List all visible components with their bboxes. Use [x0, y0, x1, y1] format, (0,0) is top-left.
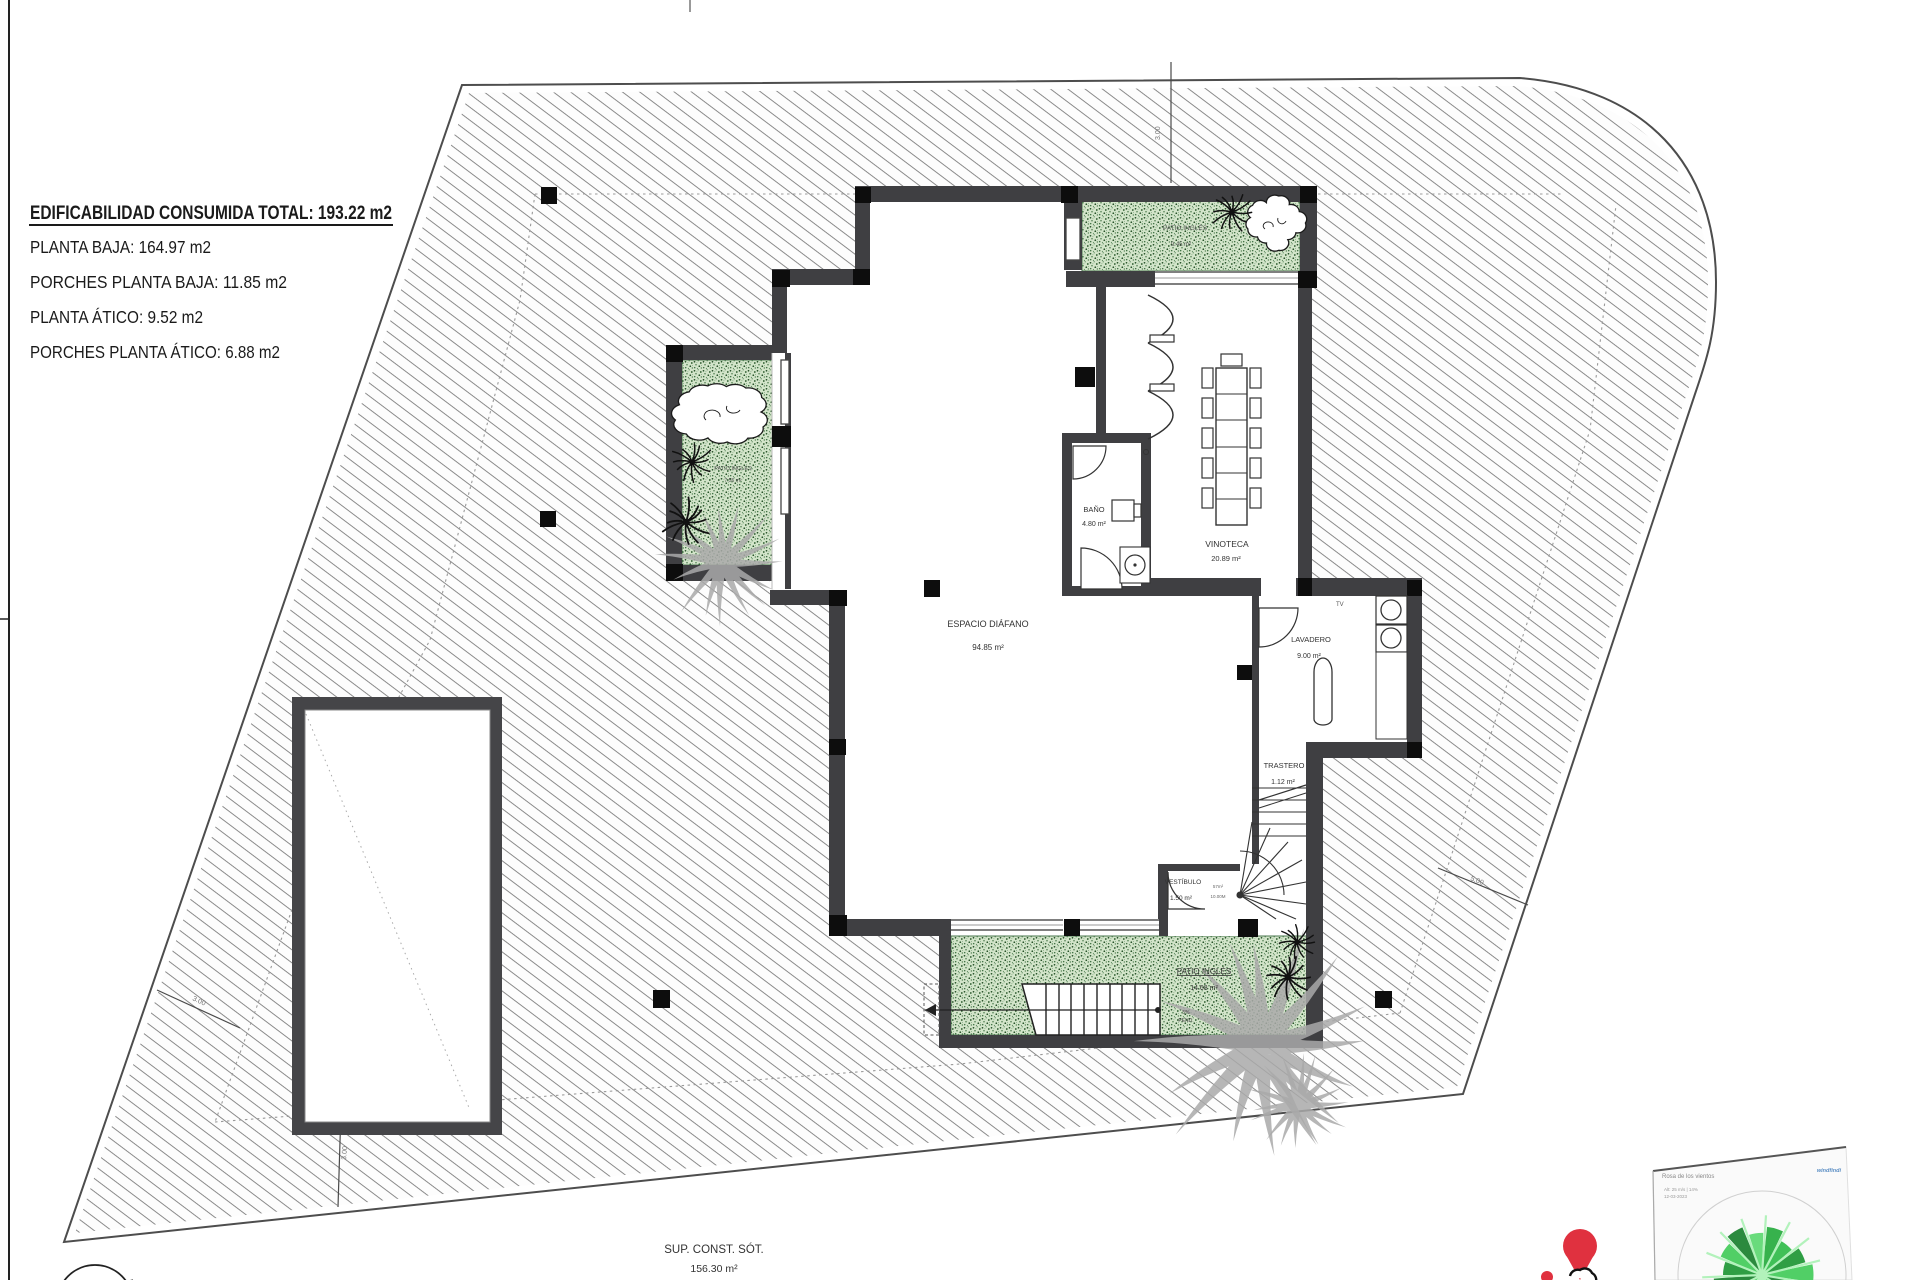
svg-text:PORCHES PLANTA ÁTICO: 6.88 m2: PORCHES PLANTA ÁTICO: 6.88 m2: [30, 342, 280, 362]
svg-text:windfindi: windfindi: [1817, 1168, 1842, 1174]
svg-text:TV: TV: [1336, 602, 1344, 608]
svg-text:57m²: 57m²: [1213, 884, 1224, 889]
svg-text:PATIO INGLÉS: PATIO INGLÉS: [714, 465, 752, 472]
svg-text:10.00M: 10.00M: [1210, 894, 1225, 899]
svg-text:SUP. CONST. SÓT.: SUP. CONST. SÓT.: [664, 1243, 763, 1256]
svg-text:PLANTA BAJA: 164.97 m2: PLANTA BAJA: 164.97 m2: [30, 237, 211, 257]
svg-text:PEND.: PEND.: [1178, 1018, 1193, 1024]
svg-text:4.80 m²: 4.80 m²: [1082, 521, 1106, 528]
svg-text:Rosa de los vientos: Rosa de los vientos: [1662, 1174, 1714, 1180]
svg-text:20.89 m²: 20.89 m²: [1211, 554, 1241, 563]
svg-text:5%: 5%: [1182, 1010, 1190, 1016]
svg-text:PATIO INGLÉS: PATIO INGLÉS: [1163, 223, 1208, 232]
svg-text:9.00 m²: 9.00 m²: [1297, 653, 1321, 660]
svg-text:1.12 m²: 1.12 m²: [1271, 779, 1295, 786]
svg-text:ESPACIO DIÁFANO: ESPACIO DIÁFANO: [947, 619, 1028, 629]
svg-text:Alt: 25 m/s | 14%: Alt: 25 m/s | 14%: [1664, 1187, 1698, 1192]
svg-text:PORCHES PLANTA BAJA: 11.85 m2: PORCHES PLANTA BAJA: 11.85 m2: [30, 272, 287, 292]
svg-text:EDIFICABILIDAD CONSUMIDA TOTAL: EDIFICABILIDAD CONSUMIDA TOTAL: 193.22 m…: [30, 203, 392, 224]
svg-text:156.30 m²: 156.30 m²: [690, 1263, 738, 1275]
svg-text:9.45 m²: 9.45 m²: [1171, 242, 1191, 248]
svg-text:1.50 m²: 1.50 m²: [1170, 895, 1193, 902]
svg-text:BAÑO: BAÑO: [1083, 505, 1104, 514]
svg-text:PATIO INGLÉS: PATIO INGLÉS: [1177, 967, 1231, 976]
svg-text:94.85 m²: 94.85 m²: [972, 643, 1004, 652]
svg-text:12-03-2023: 12-03-2023: [1664, 1194, 1688, 1199]
svg-text:7.56 m²: 7.56 m²: [725, 478, 742, 484]
svg-text:3.00: 3.00: [1155, 126, 1162, 140]
svg-text:LAVADERO: LAVADERO: [1291, 635, 1331, 644]
svg-text:14.68 m²: 14.68 m²: [1190, 985, 1218, 992]
svg-text:VESTÍBULO: VESTÍBULO: [1165, 877, 1201, 886]
svg-text:3.00: 3.00: [341, 1146, 349, 1160]
svg-text:VINOTECA: VINOTECA: [1205, 539, 1249, 549]
svg-text:PLANTA ÁTICO: 9.52 m2: PLANTA ÁTICO: 9.52 m2: [30, 307, 203, 327]
svg-text:TRASTERO: TRASTERO: [1264, 761, 1305, 770]
